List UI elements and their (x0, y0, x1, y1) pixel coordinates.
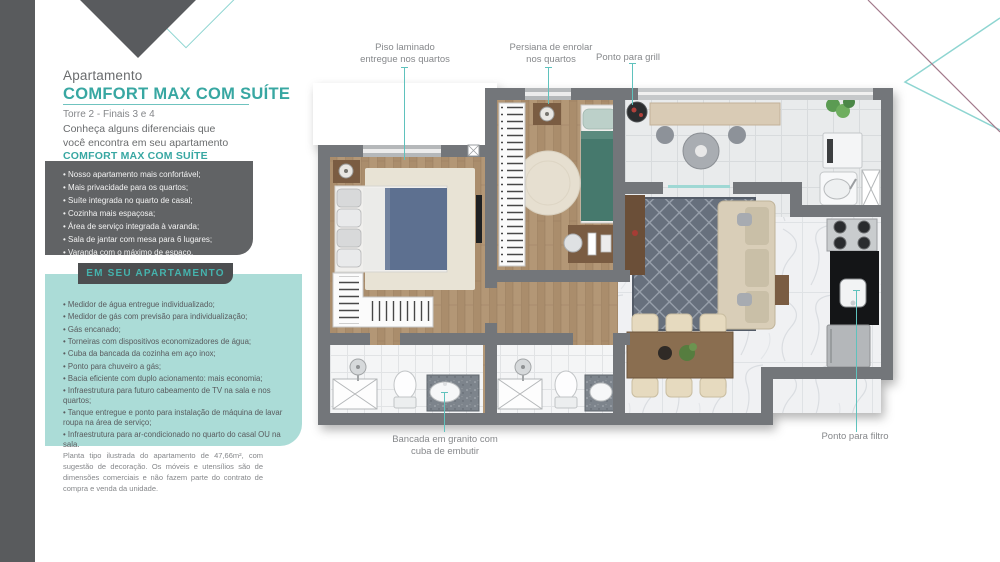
amenity-item: Ponto para chuveiro a gás; (63, 362, 292, 372)
feature-item: Sala de jantar com mesa para 6 lugares; (63, 236, 253, 244)
intro-text: Conheça alguns diferenciais que você enc… (63, 123, 228, 150)
page-title: COMFORT MAX COM SUÍTE (63, 85, 290, 104)
callout-grill-point: Ponto para grill (568, 52, 688, 64)
amenity-item: Infraestrutura para futuro cabeamento de… (63, 386, 292, 405)
amenity-item: Cuba da bancada da cozinha em aço inox; (63, 349, 292, 359)
amenity-item: Infraestrutura para ar-condicionado no q… (63, 430, 292, 449)
amenity-item: Gás encanado; (63, 325, 292, 335)
feature-item: Área de serviço integrada à varanda; (63, 223, 253, 231)
section-ribbon: EM SEU APARTAMENTO (78, 263, 233, 284)
leader-line-granite (444, 392, 445, 432)
title-underline (63, 104, 249, 105)
feature-item: Cozinha mais espaçosa; (63, 210, 253, 218)
floor-plan (313, 83, 893, 429)
apartment-eyebrow: Apartamento (63, 68, 143, 83)
leader-line-filter (856, 290, 857, 432)
callout-granite-counter: Bancada em granito com cuba de embutir (370, 434, 520, 459)
feature-item: Nosso apartamento mais confortável; (63, 171, 253, 179)
amenity-item: Bacia eficiente com duplo acionamento: m… (63, 374, 292, 384)
amenity-item: Medidor de água entregue individualizado… (63, 300, 292, 310)
amenity-item: Medidor de gás com previsão para individ… (63, 312, 292, 322)
dining-area (627, 314, 733, 397)
living-room (625, 195, 789, 330)
callout-laminate-floor: Piso laminado entregue nos quartos (330, 42, 480, 67)
callout-filter-point: Ponto para filtro (795, 431, 915, 443)
tower-subtitle: Torre 2 - Finais 3 e 4 (63, 109, 155, 120)
feature-item: Suíte integrada no quarto de casal; (63, 197, 253, 205)
feature-item: Mais privacidade para os quartos; (63, 184, 253, 192)
amenity-item: Tanque entregue e ponto para instalação … (63, 408, 292, 427)
leader-line-laminate (404, 67, 405, 160)
amenity-item: Torneiras com dispositivos economizadore… (63, 337, 292, 347)
amenities-list: Medidor de água entregue individualizado… (63, 300, 292, 450)
brochure-page: Apartamento COMFORT MAX COM SUÍTE Torre … (0, 0, 1000, 562)
amenities-box: Medidor de água entregue individualizado… (45, 274, 302, 446)
leader-line-blind (548, 67, 549, 104)
leader-line-grill (632, 63, 633, 105)
decor-corner-lines (830, 0, 1000, 180)
features-box: Nosso apartamento mais confortável;Mais … (45, 161, 253, 255)
legal-disclaimer: Planta tipo ilustrada do apartamento de … (63, 451, 263, 495)
left-accent-bar (0, 0, 35, 562)
feature-item: Varanda com o máximo de espaço. (63, 249, 253, 257)
features-list: Nosso apartamento mais confortável;Mais … (63, 171, 253, 257)
